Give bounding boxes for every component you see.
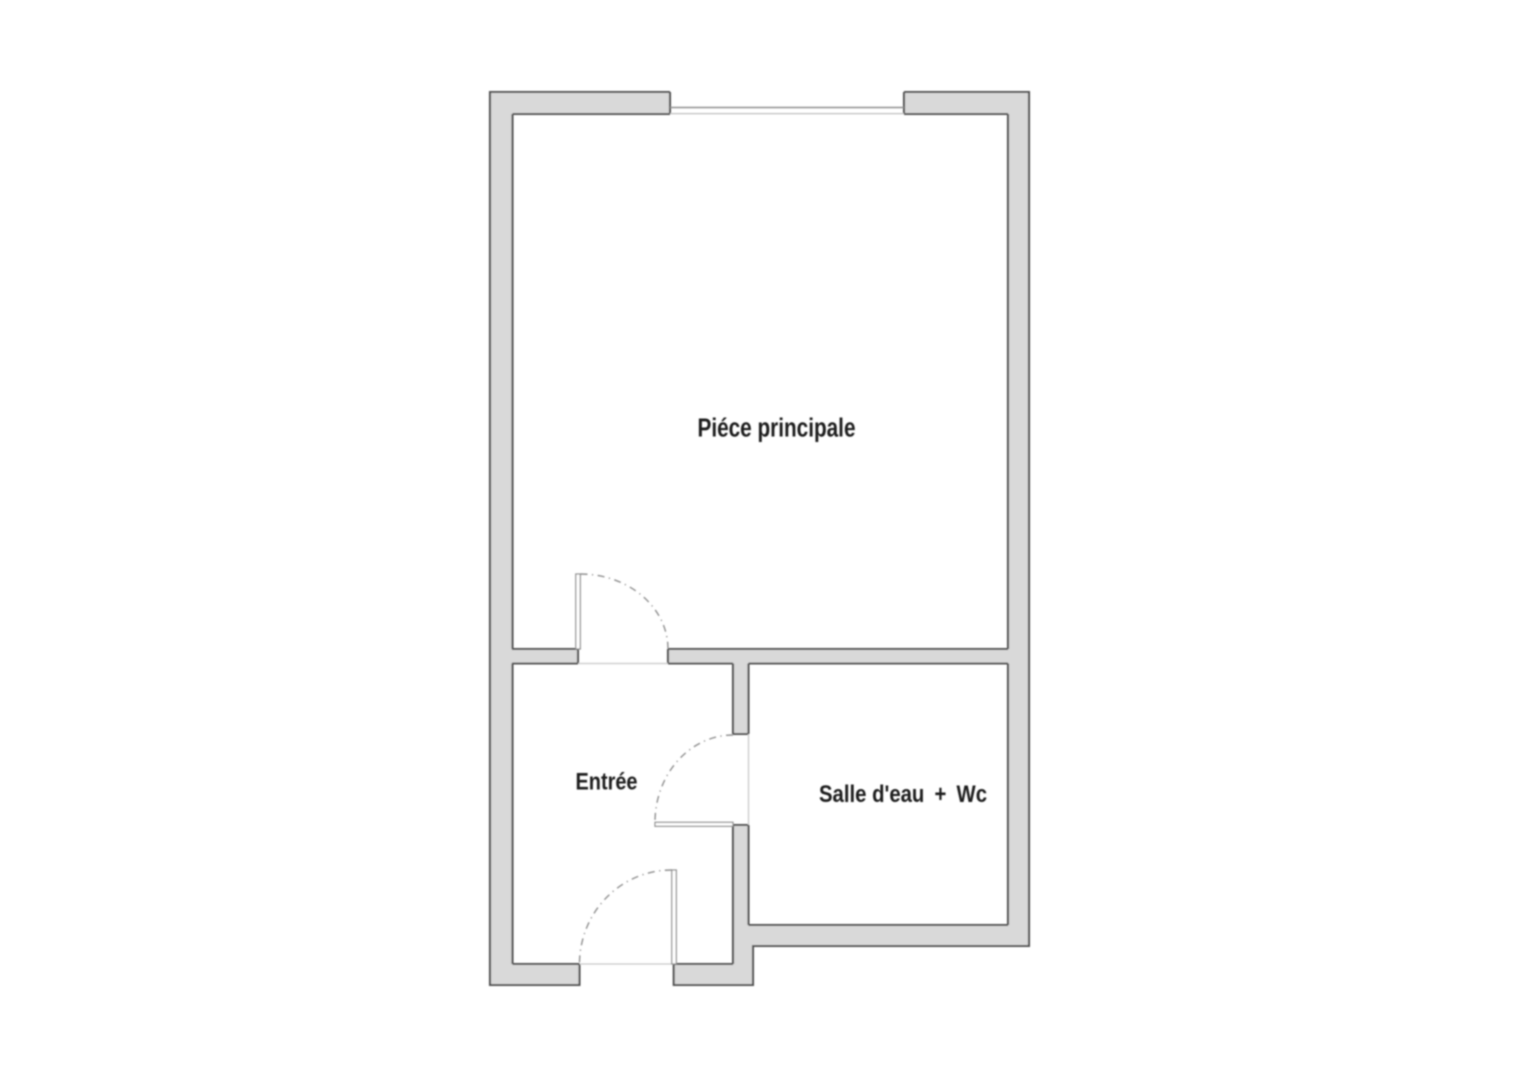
svg-text:Entrée: Entrée [576,769,638,796]
svg-text:Salle d'eau + Wc: Salle d'eau + Wc [819,781,987,808]
svg-text:Piéce principale: Piéce principale [698,415,856,443]
